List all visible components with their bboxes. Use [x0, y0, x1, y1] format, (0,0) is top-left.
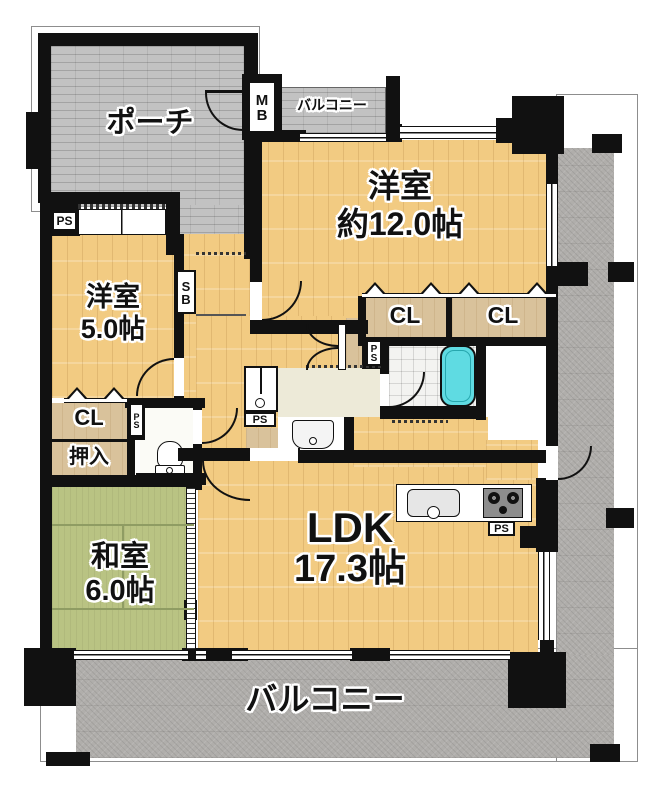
wall	[546, 338, 558, 446]
closet-door-mark-inner	[423, 285, 439, 294]
door-opening	[248, 448, 300, 461]
wall	[590, 744, 620, 762]
bedroom12-name: 洋室	[320, 170, 480, 204]
closet-door-mark-inner	[69, 390, 85, 399]
closet-divider-line	[50, 439, 127, 442]
wall	[606, 508, 634, 528]
wall	[178, 448, 250, 461]
wall	[508, 652, 566, 708]
window-washitsu-south	[74, 650, 188, 660]
wall	[546, 150, 558, 184]
closet-door-mark-inner	[106, 390, 122, 399]
door-opening	[250, 282, 262, 320]
right-balcony-floor	[557, 148, 614, 660]
wall	[46, 475, 198, 487]
wall	[476, 337, 486, 420]
wall	[592, 134, 622, 153]
stove-burner-3	[499, 506, 507, 514]
door-opening	[193, 410, 202, 444]
wall	[38, 33, 254, 46]
wall	[174, 396, 184, 404]
meter-box-label: MB	[254, 92, 271, 122]
ps-label: PS	[56, 214, 72, 228]
window-bedroom5-north	[78, 209, 166, 235]
wall	[298, 450, 546, 463]
washing-machine-door-line	[260, 368, 262, 394]
wall	[344, 417, 354, 460]
top-balcony-label: バルコニー	[282, 98, 382, 113]
wall	[46, 752, 90, 766]
pipe-space-hall: PS	[366, 340, 382, 366]
closet-door-mark-inner	[529, 285, 545, 294]
window-bedroom12-north	[400, 126, 496, 139]
shoe-box-label: SB	[179, 279, 194, 305]
bedroom5-size: 5.0帖	[50, 315, 176, 343]
bottom-balcony-label: バルコニー	[215, 683, 435, 717]
pipe-space-washer: PS	[244, 412, 276, 427]
bath-edge-dash	[392, 420, 448, 423]
washroom-floor	[278, 368, 384, 417]
closet-label: CL	[478, 303, 528, 327]
wall	[512, 96, 564, 154]
porch-label: ポーチ	[80, 108, 220, 138]
wall	[26, 112, 51, 169]
meter-box: MB	[248, 81, 276, 133]
ps-label: PS	[132, 412, 142, 428]
wall	[554, 262, 588, 286]
oshiire-label: 押入	[58, 447, 120, 468]
wall	[24, 648, 76, 706]
door-opening	[546, 446, 558, 480]
wall	[608, 262, 634, 282]
wash-basin-drain	[309, 437, 317, 445]
closet-door-mark-inner	[461, 285, 477, 294]
ldk-size: 17.3帖	[240, 550, 460, 590]
ps-label: PS	[369, 344, 380, 362]
bedroom12-size: 約12.0帖	[300, 208, 500, 242]
stove-burner-1	[488, 492, 500, 504]
door-opening	[174, 358, 184, 396]
ps-label: PS	[494, 523, 509, 535]
wall	[446, 296, 452, 340]
closet-label: CL	[380, 303, 430, 327]
window-bedroom12-east	[546, 184, 558, 266]
genkan-step-dash	[196, 252, 246, 255]
window-under-top-balcony	[300, 133, 386, 142]
bedroom5-name: 洋室	[50, 283, 176, 311]
stove-burner-2	[507, 492, 519, 504]
washitsu-size: 6.0帖	[50, 576, 190, 606]
bathtub-inner-line	[445, 350, 471, 402]
wall	[520, 526, 544, 548]
ps-label: PS	[253, 414, 268, 426]
floor-plan: MB SB PS PS PS PS PS ポーチ バルコニー 洋室 約12.0帖…	[0, 0, 650, 800]
window-post	[206, 649, 232, 661]
pipe-space-toilet: PS	[130, 404, 143, 436]
pipe-space-porch: PS	[52, 211, 77, 231]
wall	[380, 406, 486, 419]
wall	[76, 192, 168, 204]
wall	[250, 133, 262, 282]
washing-machine-knob	[255, 398, 265, 408]
ldk-name: LDK	[250, 506, 450, 550]
washitsu-name: 和室	[50, 542, 190, 572]
closet-door-mark-inner	[367, 285, 383, 294]
genkan-hall-step	[196, 314, 246, 316]
window-post	[352, 649, 390, 661]
door-opening	[380, 374, 389, 406]
pipe-space-kitchen: PS	[488, 521, 515, 536]
shoe-box: SB	[176, 270, 196, 314]
double-door-line	[338, 324, 346, 370]
window-ldk-east	[538, 552, 550, 640]
closet-left-label: CL	[62, 406, 116, 429]
